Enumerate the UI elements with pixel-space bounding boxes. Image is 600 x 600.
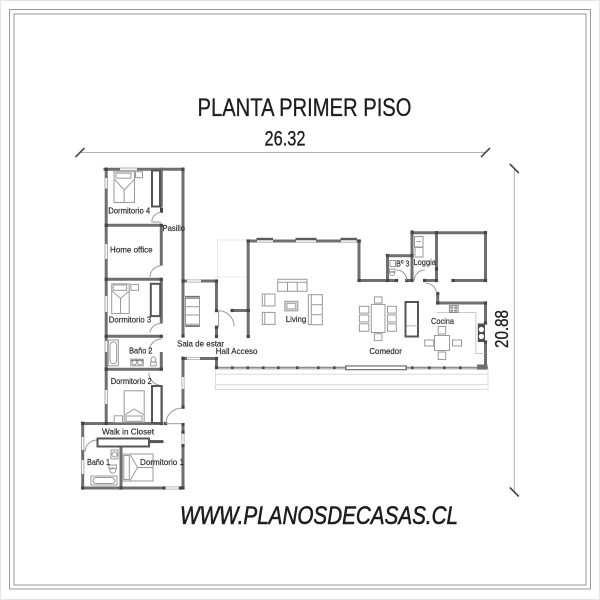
svg-text:Baño 2: Baño 2 <box>129 345 152 355</box>
svg-text:Cocina: Cocina <box>431 316 454 326</box>
svg-text:Bº 3: Bº 3 <box>396 259 409 269</box>
svg-text:Pasillo: Pasillo <box>163 223 186 233</box>
svg-text:Living: Living <box>286 314 307 324</box>
svg-text:Dormitorio 4: Dormitorio 4 <box>108 205 150 215</box>
svg-text:Dormitorio 2: Dormitorio 2 <box>111 376 152 386</box>
svg-text:Baño 1: Baño 1 <box>87 457 110 467</box>
svg-text:Dormitorio 1: Dormitorio 1 <box>140 457 184 467</box>
svg-text:20.88: 20.88 <box>491 310 512 348</box>
svg-text:Walk in Closet: Walk in Closet <box>102 427 155 437</box>
svg-text:PLANTA PRIMER PISO: PLANTA PRIMER PISO <box>198 94 412 122</box>
svg-text:Hall Acceso: Hall Acceso <box>216 346 258 356</box>
svg-text:Dormitorio 3: Dormitorio 3 <box>109 314 152 324</box>
svg-text:Home office: Home office <box>110 245 153 255</box>
svg-text:WWW.PLANOSDECASAS.CL: WWW.PLANOSDECASAS.CL <box>180 502 458 530</box>
svg-text:Loggia: Loggia <box>414 257 437 267</box>
svg-text:26.32: 26.32 <box>265 128 306 151</box>
svg-text:Comedor: Comedor <box>369 346 402 356</box>
